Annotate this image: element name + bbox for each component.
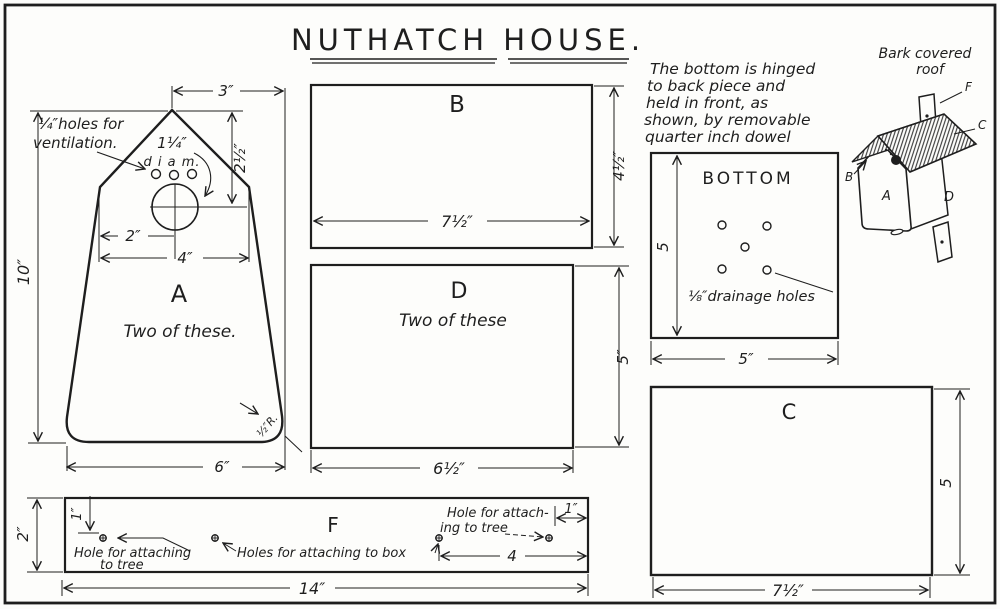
corner-radius-tick [285, 436, 302, 452]
dim-b-width-label: 7½″ [441, 212, 473, 231]
piece-c-letter: C [782, 400, 797, 424]
dim-f-hole-right-label: 1″ [564, 502, 577, 517]
piece-b: B 7½″ 4½″ [311, 85, 628, 248]
assembly-note-line4: shown, by removable [644, 111, 811, 129]
hole-diam-word: d i a m. [143, 155, 200, 170]
dim-a-hole-offset-label: 2″ [125, 227, 141, 245]
dim-a-top-width-label: 3″ [218, 82, 234, 100]
piece-d-letter: D [451, 279, 468, 304]
dim-a-bottom-width [67, 446, 284, 471]
piece-d-outline [311, 265, 573, 448]
piece-d-quantity-note: Two of these [399, 311, 507, 331]
assembly-label-c: C [978, 118, 987, 132]
piece-a: ¼″holes for ventilation. 1¼″ d i a m. 3″… [14, 82, 302, 476]
dim-bottom-width-label: 5″ [738, 350, 754, 368]
assembly-caption-line1: Bark covered [879, 46, 972, 62]
assembly-note-line3: held in front, as [646, 94, 768, 112]
assembly-entrance-hole [891, 155, 901, 165]
assembly-label-f: F [965, 80, 973, 94]
assembly-note: The bottom is hinged to back piece and h… [644, 60, 815, 146]
dim-a-bottom-width-label: 6″ [214, 458, 230, 476]
assembly-note-line2: to back piece and [647, 77, 785, 95]
dim-f-length-label: 14″ [299, 579, 325, 598]
assembly-label-a: A [881, 189, 891, 204]
dim-f-height-label: 2″ [14, 526, 32, 542]
piece-a-letter: A [171, 280, 189, 308]
dim-d-height-label: 5″ [614, 349, 632, 365]
assembly-label-d: D [944, 190, 954, 205]
dim-f-height [27, 498, 63, 572]
assembly-caption-line2: roof [916, 62, 946, 78]
assembly-note-line1: The bottom is hinged [650, 60, 815, 78]
nuthatch-house-plan: NUTHATCH HOUSE. ¼″holes for ventilation.… [0, 0, 1000, 609]
piece-c: C 5 7½″ [651, 387, 970, 600]
dim-c-width-label: 7½″ [772, 581, 804, 600]
title-block: NUTHATCH HOUSE. [291, 23, 645, 63]
drawing-sheet: NUTHATCH HOUSE. ¼″holes for ventilation.… [0, 0, 1000, 609]
dim-f-hole-span-label: 4 [507, 547, 517, 565]
dim-a-peak-to-hole-label: 2½″ [231, 143, 249, 173]
piece-bottom: BOTTOM 5 ⅛″drainage holes 5″ [651, 153, 838, 368]
assembly-vent-dot1 [885, 149, 887, 151]
assembly-view: Bark covered roof F C B A D [845, 46, 987, 262]
piece-b-letter: B [449, 92, 465, 118]
dim-f-hole-top-label: 1″ [70, 507, 85, 520]
assembly-note-line5: quarter inch dowel [645, 128, 791, 146]
piece-bottom-letter: BOTTOM [702, 169, 793, 189]
assembly-vent-dot2 [890, 153, 892, 155]
f-note-left-line2: to tree [100, 558, 144, 573]
hole-diam-value: 1¼″ [157, 134, 187, 152]
f-note-right-line2: ing to tree [440, 521, 508, 536]
dim-b-height-label: 4½″ [610, 151, 628, 181]
dim-a-height-label: 10″ [14, 259, 33, 285]
page-title: NUTHATCH HOUSE. [291, 23, 645, 57]
vent-note-line2: ventilation. [33, 134, 118, 152]
piece-a-quantity-note: Two of these. [123, 322, 236, 342]
vent-note-line1: ¼″holes for [38, 115, 124, 133]
drainage-note: ⅛″drainage holes [688, 289, 815, 305]
piece-f: F 2″ 1″ Hole for attaching to tree Holes [14, 496, 588, 598]
f-note-mid: Holes for attaching to box [237, 546, 406, 561]
f-note-right-line1: Hole for attach- [447, 506, 549, 521]
mount-board-top-hole [925, 114, 928, 117]
dim-bottom-height-label: 5 [654, 242, 672, 252]
piece-f-letter: F [327, 513, 339, 537]
title-underline [310, 59, 629, 63]
assembly-label-b: B [845, 170, 853, 184]
dim-a-shoulder-width-label: 4″ [177, 249, 193, 267]
mount-board-bottom-hole [940, 240, 943, 243]
ventilation-holes [152, 170, 197, 180]
dim-d-width-label: 6½″ [433, 459, 465, 478]
assembly-label-f-leader [940, 92, 962, 103]
piece-d: D Two of these 5″ 6½″ [311, 265, 632, 478]
dim-c-height-label: 5 [937, 478, 955, 488]
